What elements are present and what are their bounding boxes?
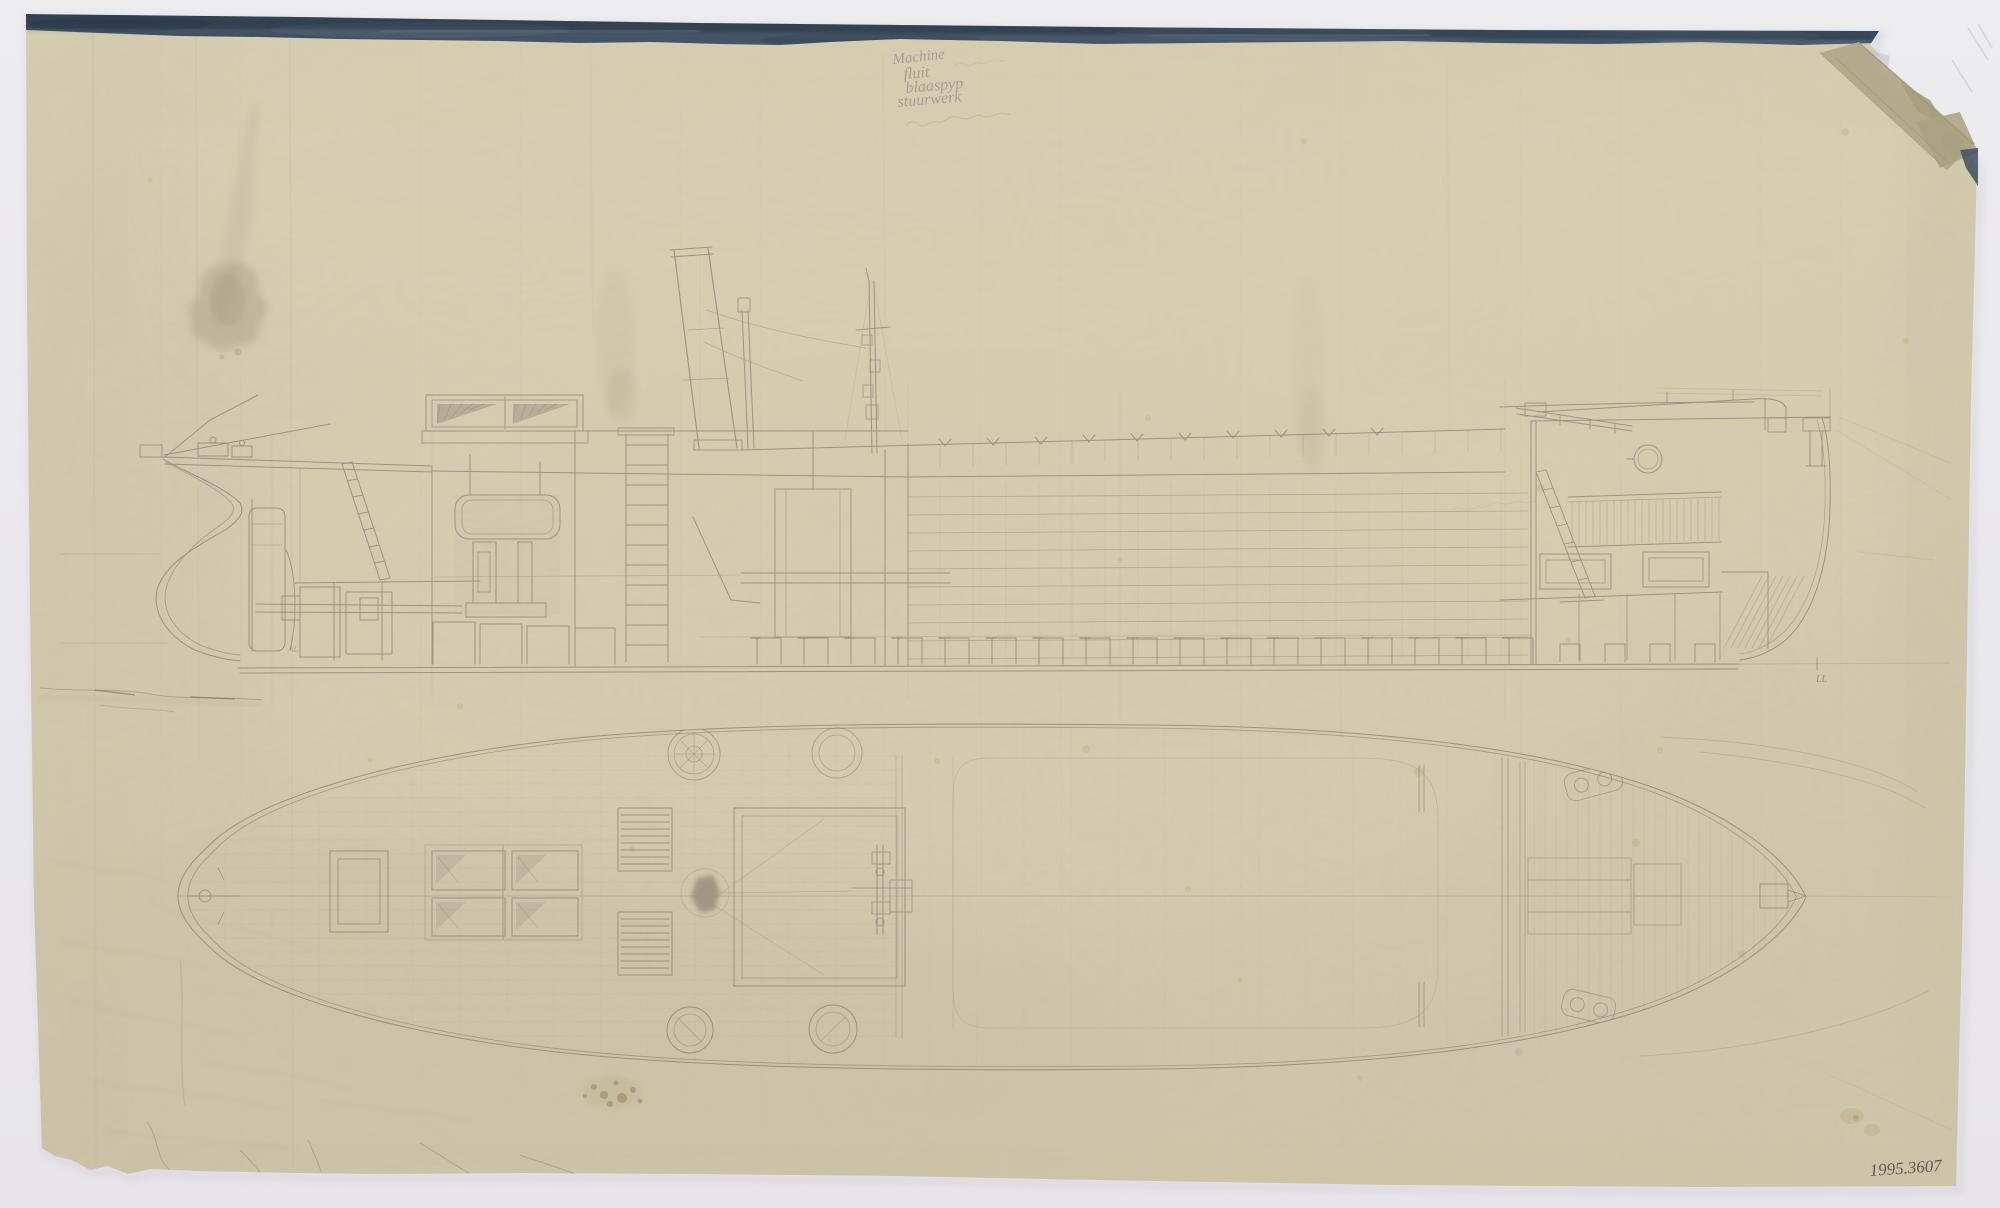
svg-text:LL: LL xyxy=(1815,674,1828,685)
svg-text:AL: AL xyxy=(287,644,299,654)
